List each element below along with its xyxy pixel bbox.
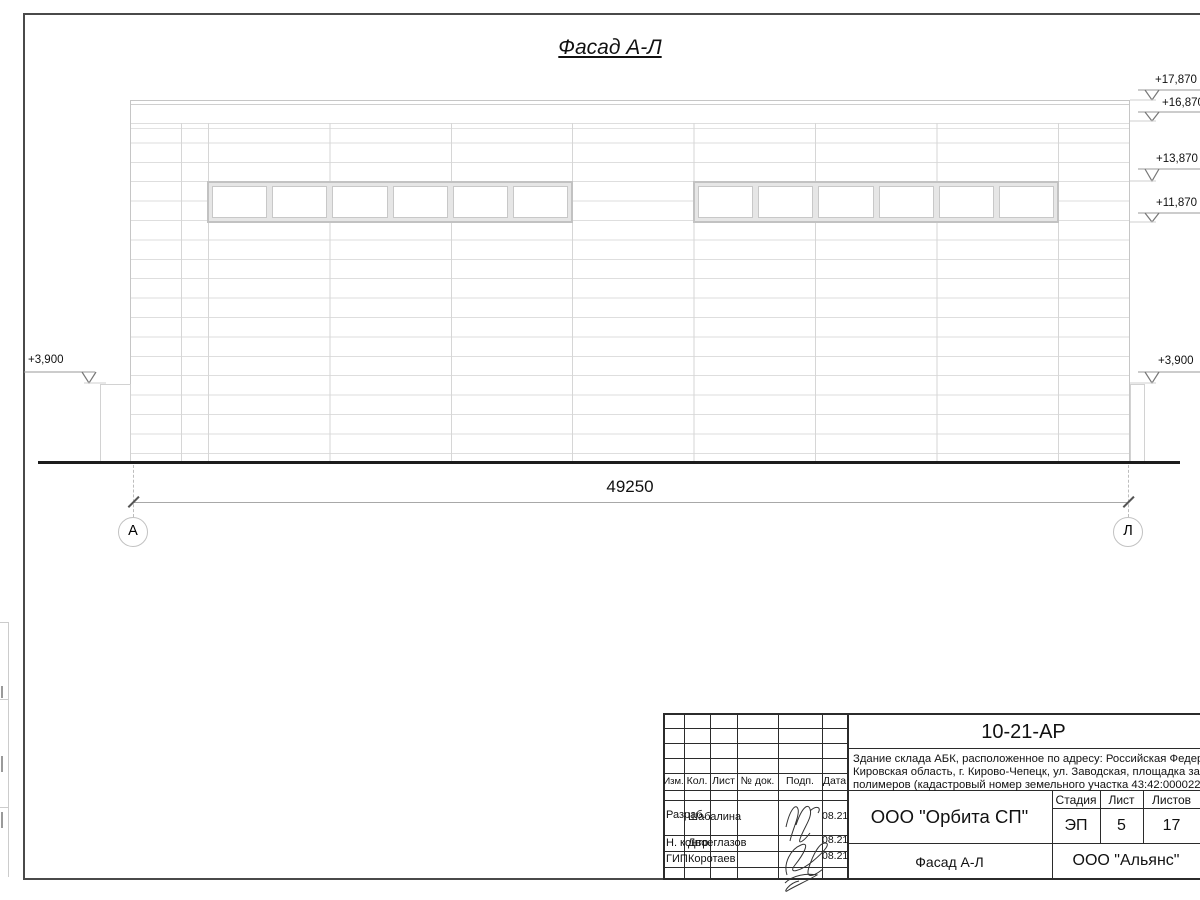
role-gip: ГИП bbox=[666, 853, 688, 865]
project-description-line1: Здание склада АБК, расположенное по адре… bbox=[853, 753, 1200, 765]
signature-gip bbox=[773, 835, 843, 893]
sheet-label: Лист bbox=[1100, 793, 1143, 807]
window-strip-right bbox=[693, 181, 1059, 223]
extension-line-l bbox=[1128, 465, 1129, 517]
window-pane bbox=[879, 186, 934, 218]
project-description-line3: полимеров (кадастровый номер земельного … bbox=[853, 779, 1200, 791]
rev-col-izm: Изм. bbox=[663, 776, 684, 787]
margin-divider bbox=[0, 622, 8, 623]
porch-left bbox=[100, 384, 131, 463]
elevation-marker-icon bbox=[24, 371, 106, 385]
window-pane bbox=[758, 186, 813, 218]
porch-right bbox=[1130, 384, 1145, 463]
dimension-line bbox=[133, 502, 1128, 503]
elevation-marker-icon bbox=[1130, 371, 1200, 384]
ground-line bbox=[38, 461, 1180, 464]
name-gip: Коротаев bbox=[688, 853, 736, 865]
rev-col-kol: Кол. bbox=[684, 775, 710, 787]
window-pane bbox=[818, 186, 873, 218]
axis-bubble-l: Л bbox=[1113, 517, 1143, 547]
rev-col-doc: № док. bbox=[737, 775, 778, 787]
elevation-label-right: +3,900 bbox=[1158, 355, 1194, 367]
sheet-frame-top bbox=[23, 13, 1200, 15]
drawing-sheet: { "facade": { "title": "Фасад А-Л", "ove… bbox=[0, 0, 1200, 900]
date-developer: 08.21 bbox=[822, 810, 847, 822]
window-pane bbox=[332, 186, 387, 218]
window-pane bbox=[453, 186, 508, 218]
window-pane bbox=[698, 186, 753, 218]
elevation-label-right: +11,870 bbox=[1156, 197, 1197, 209]
drawing-name: Фасад А-Л bbox=[847, 854, 1052, 870]
stage-value: ЭП bbox=[1052, 817, 1100, 835]
stage-label: Стадия bbox=[1052, 793, 1100, 807]
sheet-value: 5 bbox=[1100, 817, 1143, 835]
window-pane bbox=[272, 186, 327, 218]
elevation-marker-icon bbox=[1130, 168, 1200, 183]
rev-col-list: Лист bbox=[710, 775, 737, 787]
rev-col-podp: Подп. bbox=[778, 775, 822, 787]
name-developer: Шабалина bbox=[688, 811, 741, 823]
dimension-value: 49250 bbox=[530, 477, 730, 497]
doc-number: 10-21-АР bbox=[847, 721, 1200, 744]
elevation-label-right: +16,870 bbox=[1162, 97, 1200, 109]
design-company: ООО "Орбита СП" bbox=[847, 806, 1052, 828]
elevation-label-right: +17,870 bbox=[1155, 74, 1197, 86]
elevation-label-left: +3,900 bbox=[28, 354, 64, 366]
margin-divider bbox=[0, 807, 8, 808]
rev-col-data: Дата bbox=[822, 775, 847, 787]
sheets-label: Листов bbox=[1143, 793, 1200, 807]
axis-bubble-a: А bbox=[118, 517, 148, 547]
project-description-line2: Кировская область, г. Кирово-Чепецк, ул.… bbox=[853, 766, 1200, 778]
margin-text-fragment bbox=[1, 812, 3, 828]
margin-text-fragment bbox=[1, 686, 3, 698]
margin-divider bbox=[0, 699, 8, 700]
window-pane bbox=[939, 186, 994, 218]
drawing-view-title: Фасад А-Л bbox=[470, 36, 750, 60]
facade-panel-joints bbox=[131, 123, 1129, 462]
margin-text-fragment bbox=[1, 756, 3, 772]
window-pane bbox=[999, 186, 1054, 218]
elevation-marker-icon bbox=[1130, 111, 1200, 123]
window-pane bbox=[393, 186, 448, 218]
window-pane bbox=[212, 186, 267, 218]
title-block: Изм. Кол. Лист № док. Подп. Дата Разраб.… bbox=[663, 713, 1200, 880]
parapet-line bbox=[131, 104, 1129, 105]
sheets-value: 17 bbox=[1143, 817, 1200, 835]
contractor-company: ООО "Альянс" bbox=[1052, 852, 1200, 870]
name-norm-control: Двоеглазов bbox=[688, 837, 746, 849]
elevation-marker-icon bbox=[1130, 212, 1200, 224]
window-pane bbox=[513, 186, 568, 218]
elevation-label-right: +13,870 bbox=[1156, 153, 1198, 165]
window-strip-left bbox=[207, 181, 573, 223]
extension-line-a bbox=[133, 465, 134, 517]
sheet-frame-left bbox=[23, 13, 25, 880]
margin-column-line bbox=[8, 622, 9, 877]
